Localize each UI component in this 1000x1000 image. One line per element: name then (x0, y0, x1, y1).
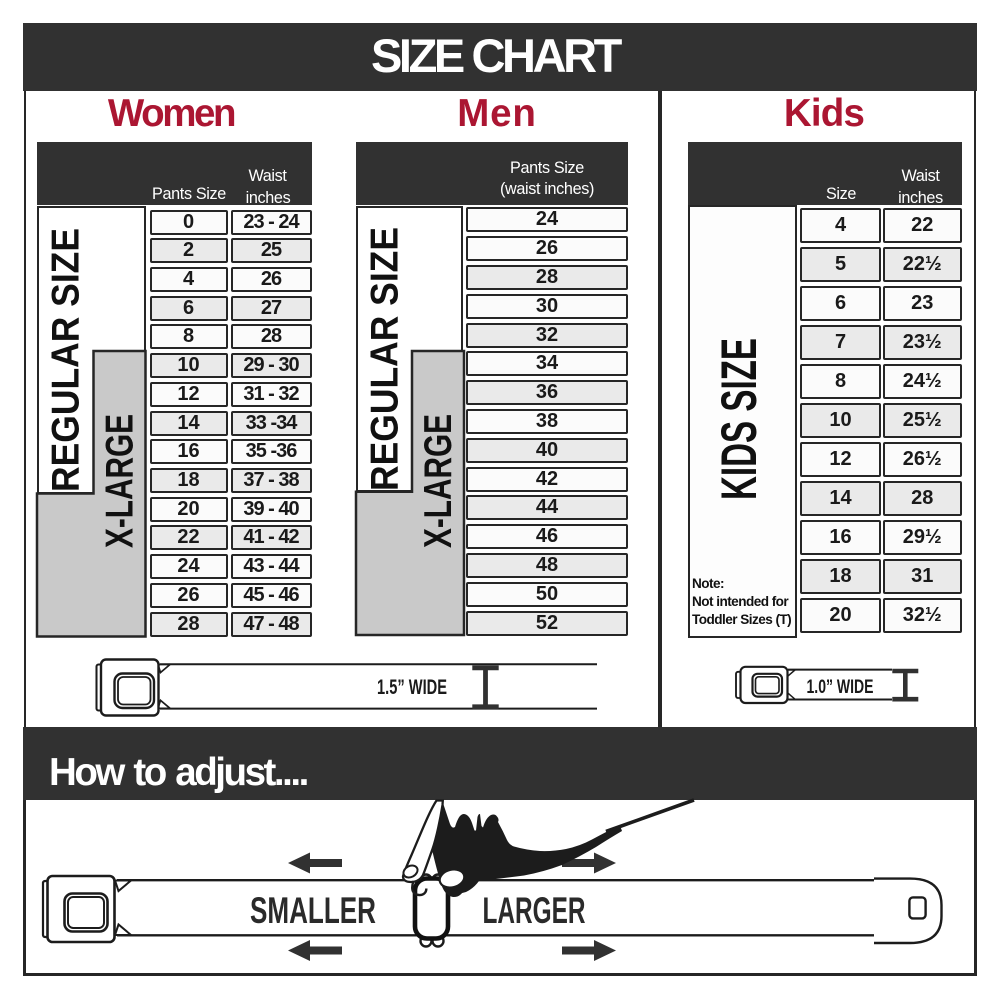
svg-text:LARGER: LARGER (483, 890, 586, 931)
svg-text:SMALLER: SMALLER (250, 890, 376, 931)
